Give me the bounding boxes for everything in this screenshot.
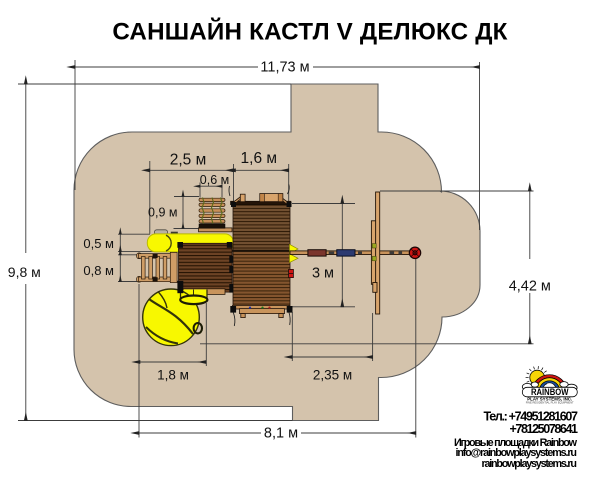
svg-text:RAINBOW: RAINBOW: [531, 387, 569, 397]
svg-text:8,1 м: 8,1 м: [264, 426, 298, 442]
svg-text:9,8 м: 9,8 м: [8, 264, 41, 280]
svg-text:0,8 м: 0,8 м: [83, 263, 114, 278]
svg-text:0,5 м: 0,5 м: [83, 236, 114, 251]
svg-text:4,42 м: 4,42 м: [509, 279, 551, 295]
svg-text:3 м: 3 м: [312, 266, 334, 282]
svg-text:1,8 м: 1,8 м: [157, 368, 189, 383]
svg-text:FINE RESIDENTIAL PLAY EQUIPMEN: FINE RESIDENTIAL PLAY EQUIPMENT: [526, 401, 574, 405]
svg-text:+78125078641: +78125078641: [510, 422, 579, 436]
svg-text:11,73 м: 11,73 м: [260, 60, 309, 76]
svg-text:0,6 м: 0,6 м: [200, 173, 229, 187]
svg-text:0,9 м: 0,9 м: [148, 206, 177, 220]
svg-text:2,35 м: 2,35 м: [313, 368, 352, 383]
svg-text:САНШАЙН КАСТЛ V ДЕЛЮКС ДК: САНШАЙН КАСТЛ V ДЕЛЮКС ДК: [112, 17, 507, 45]
svg-text:1,6 м: 1,6 м: [241, 150, 278, 167]
svg-text:rainbowplaysystems.ru: rainbowplaysystems.ru: [482, 458, 578, 470]
svg-text:2,5 м: 2,5 м: [170, 151, 207, 168]
svg-text:Тел.: +74951281607: Тел.: +74951281607: [484, 409, 579, 423]
